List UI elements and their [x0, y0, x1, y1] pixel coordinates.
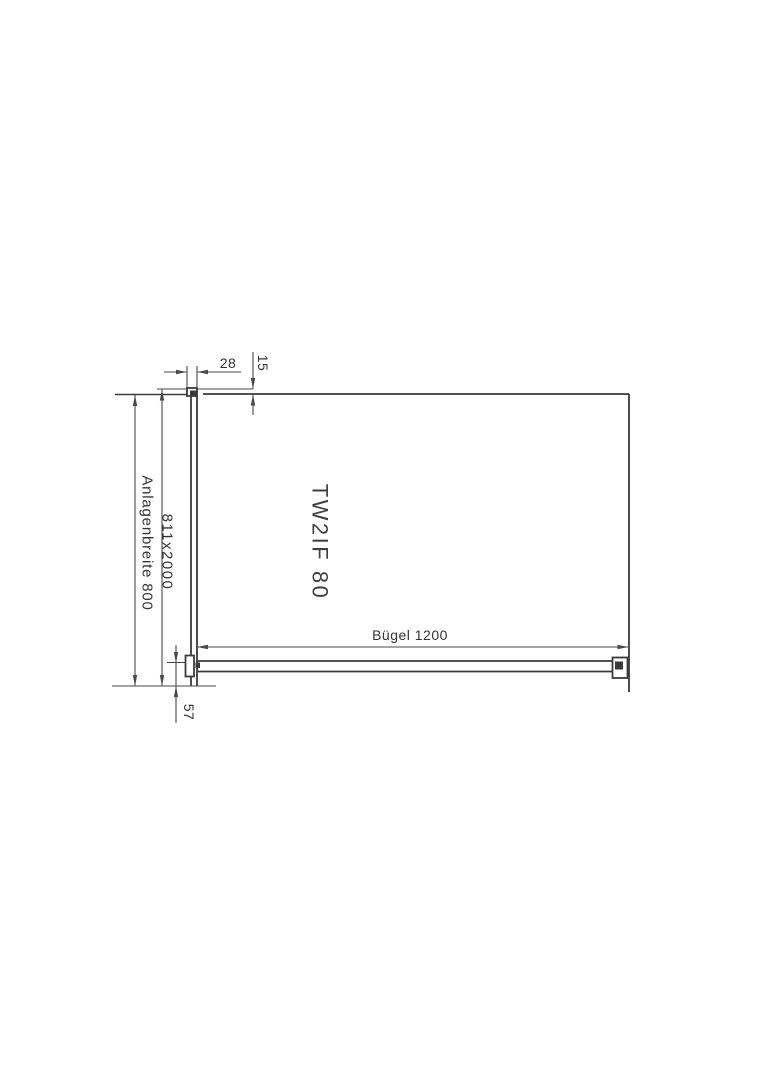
technical-drawing-page: Bügel 1200 Anlagenbreite 800 811x2000 28: [0, 0, 763, 1080]
bar-offset-label: 57: [181, 704, 197, 721]
dimension-wall-gap: 15: [251, 352, 271, 415]
dimension-support-bar: Bügel 1200: [197, 627, 629, 649]
dimension-installation-width: Anlagenbreite 800: [133, 395, 156, 686]
support-bar-dimension-label: Bügel 1200: [372, 627, 448, 643]
arrow-left-icon: [197, 645, 208, 649]
arrow-down-icon: [133, 675, 137, 686]
dimension-glass-size: 811x2000: [159, 390, 176, 687]
dimension-profile-width: 28: [164, 355, 241, 388]
wall-mount-screw: [615, 662, 623, 670]
arrow-right-icon: [176, 370, 187, 374]
glass-clamp-screw: [196, 663, 201, 669]
arrow-right-icon: [618, 645, 629, 649]
arrow-down-icon: [160, 675, 164, 686]
arrow-down-icon: [251, 378, 255, 389]
glass-clamp-bracket: [186, 656, 195, 677]
shower-panel-plan-drawing: Bügel 1200 Anlagenbreite 800 811x2000 28: [0, 0, 763, 1080]
arrow-up-icon: [251, 395, 255, 406]
arrow-up-icon: [174, 686, 178, 697]
wall-gap-label: 15: [255, 355, 271, 372]
arrow-down-icon: [174, 652, 178, 663]
profile-width-label: 28: [220, 355, 237, 371]
arrow-left-icon: [197, 370, 208, 374]
installation-width-label: Anlagenbreite 800: [139, 475, 156, 610]
arrow-up-icon: [133, 395, 137, 406]
model-designation-label: TW2IF 80: [308, 484, 333, 601]
glass-size-label: 811x2000: [159, 514, 176, 591]
glass-end-in-profile: [190, 391, 197, 397]
